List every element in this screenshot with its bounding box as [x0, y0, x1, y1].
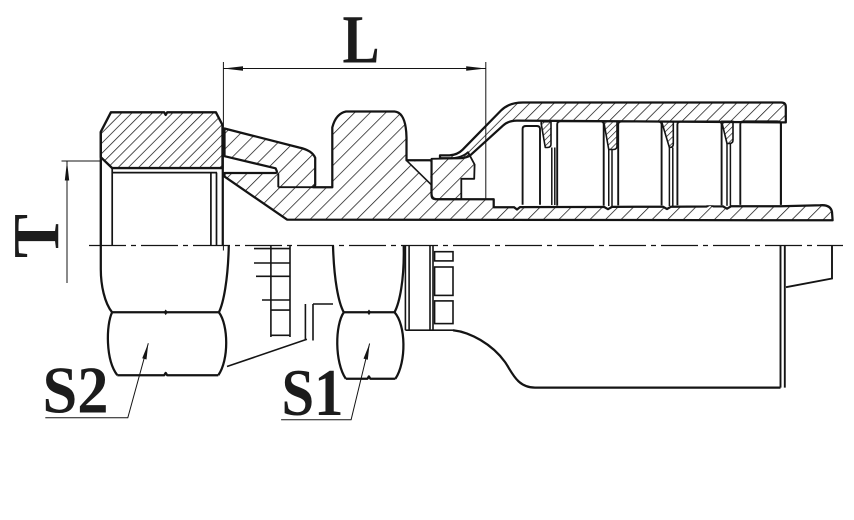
- svg-text:S2: S2: [43, 354, 109, 428]
- svg-text:L: L: [343, 2, 380, 78]
- svg-text:S1: S1: [282, 356, 344, 430]
- svg-text:T: T: [0, 214, 73, 258]
